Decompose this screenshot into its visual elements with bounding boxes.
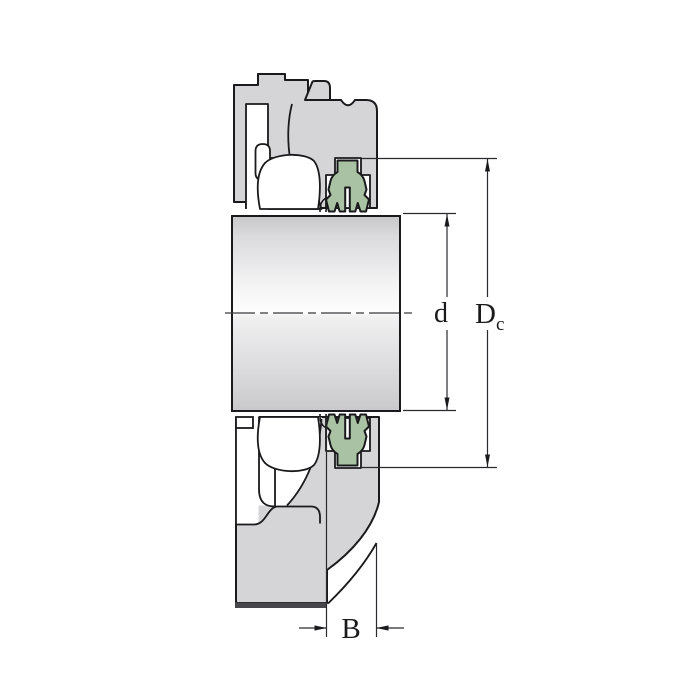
- dc-arrow-up: [485, 159, 490, 172]
- bottom-housing-assembly: [235, 414, 379, 608]
- d-arrow-up: [445, 214, 450, 227]
- bearing-dimension-drawing: d Dc B: [0, 0, 700, 700]
- d-arrow-down: [445, 398, 450, 411]
- label-b: B: [341, 613, 360, 645]
- bottom-left-recess: [235, 416, 258, 524]
- top-housing-assembly: [234, 74, 377, 212]
- top-ball: [258, 155, 320, 209]
- foot-base-edge: [235, 603, 326, 609]
- bottom-ball: [258, 417, 320, 471]
- label-d: d: [434, 298, 448, 329]
- shaft: [225, 216, 412, 411]
- label-dc-subscript: c: [496, 314, 504, 335]
- bearing-cross-section-figure: d Dc B: [0, 0, 700, 700]
- b-arrow-right: [315, 625, 327, 630]
- label-dc: Dc: [475, 298, 504, 335]
- dc-arrow-down: [485, 455, 490, 468]
- b-arrow-left: [377, 625, 389, 630]
- bottom-ring-land-tab: [236, 417, 253, 428]
- label-dc-main: D: [475, 298, 496, 330]
